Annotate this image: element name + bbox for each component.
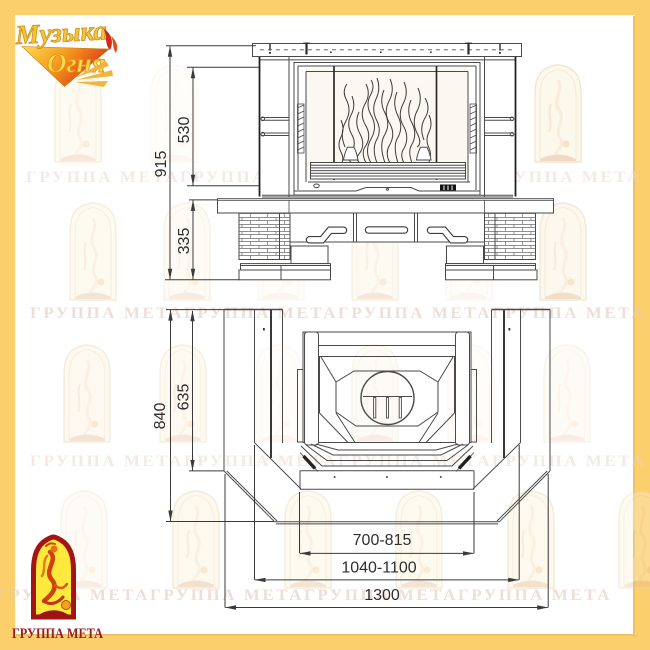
- svg-text:700-815: 700-815: [353, 532, 412, 549]
- svg-text:635: 635: [176, 384, 193, 411]
- svg-text:ГРУППА МЕТАГРУППА МЕТАГРУППА М: ГРУППА МЕТАГРУППА МЕТАГРУППА МЕТАГРУППА …: [30, 305, 646, 322]
- svg-text:Музыка: Музыка: [14, 15, 108, 50]
- svg-text:530: 530: [176, 117, 193, 144]
- svg-text:ГРУППА МЕТАГРУППА МЕТАГРУППА М: ГРУППА МЕТАГРУППА МЕТАГРУППА МЕТАГРУППА …: [30, 453, 646, 470]
- svg-text:840: 840: [152, 403, 169, 430]
- svg-text:335: 335: [176, 228, 193, 255]
- svg-text:Огня: Огня: [47, 48, 105, 78]
- svg-text:915: 915: [153, 151, 170, 178]
- svg-text:ГРУППА МЕТАГРУППА МЕТАГРУППА М: ГРУППА МЕТАГРУППА МЕТАГРУППА МЕТАГРУППА …: [0, 587, 612, 604]
- svg-text:1300: 1300: [364, 587, 400, 604]
- svg-text:ГРУППА МЕТА: ГРУППА МЕТА: [12, 626, 103, 642]
- svg-text:1040-1100: 1040-1100: [341, 560, 416, 577]
